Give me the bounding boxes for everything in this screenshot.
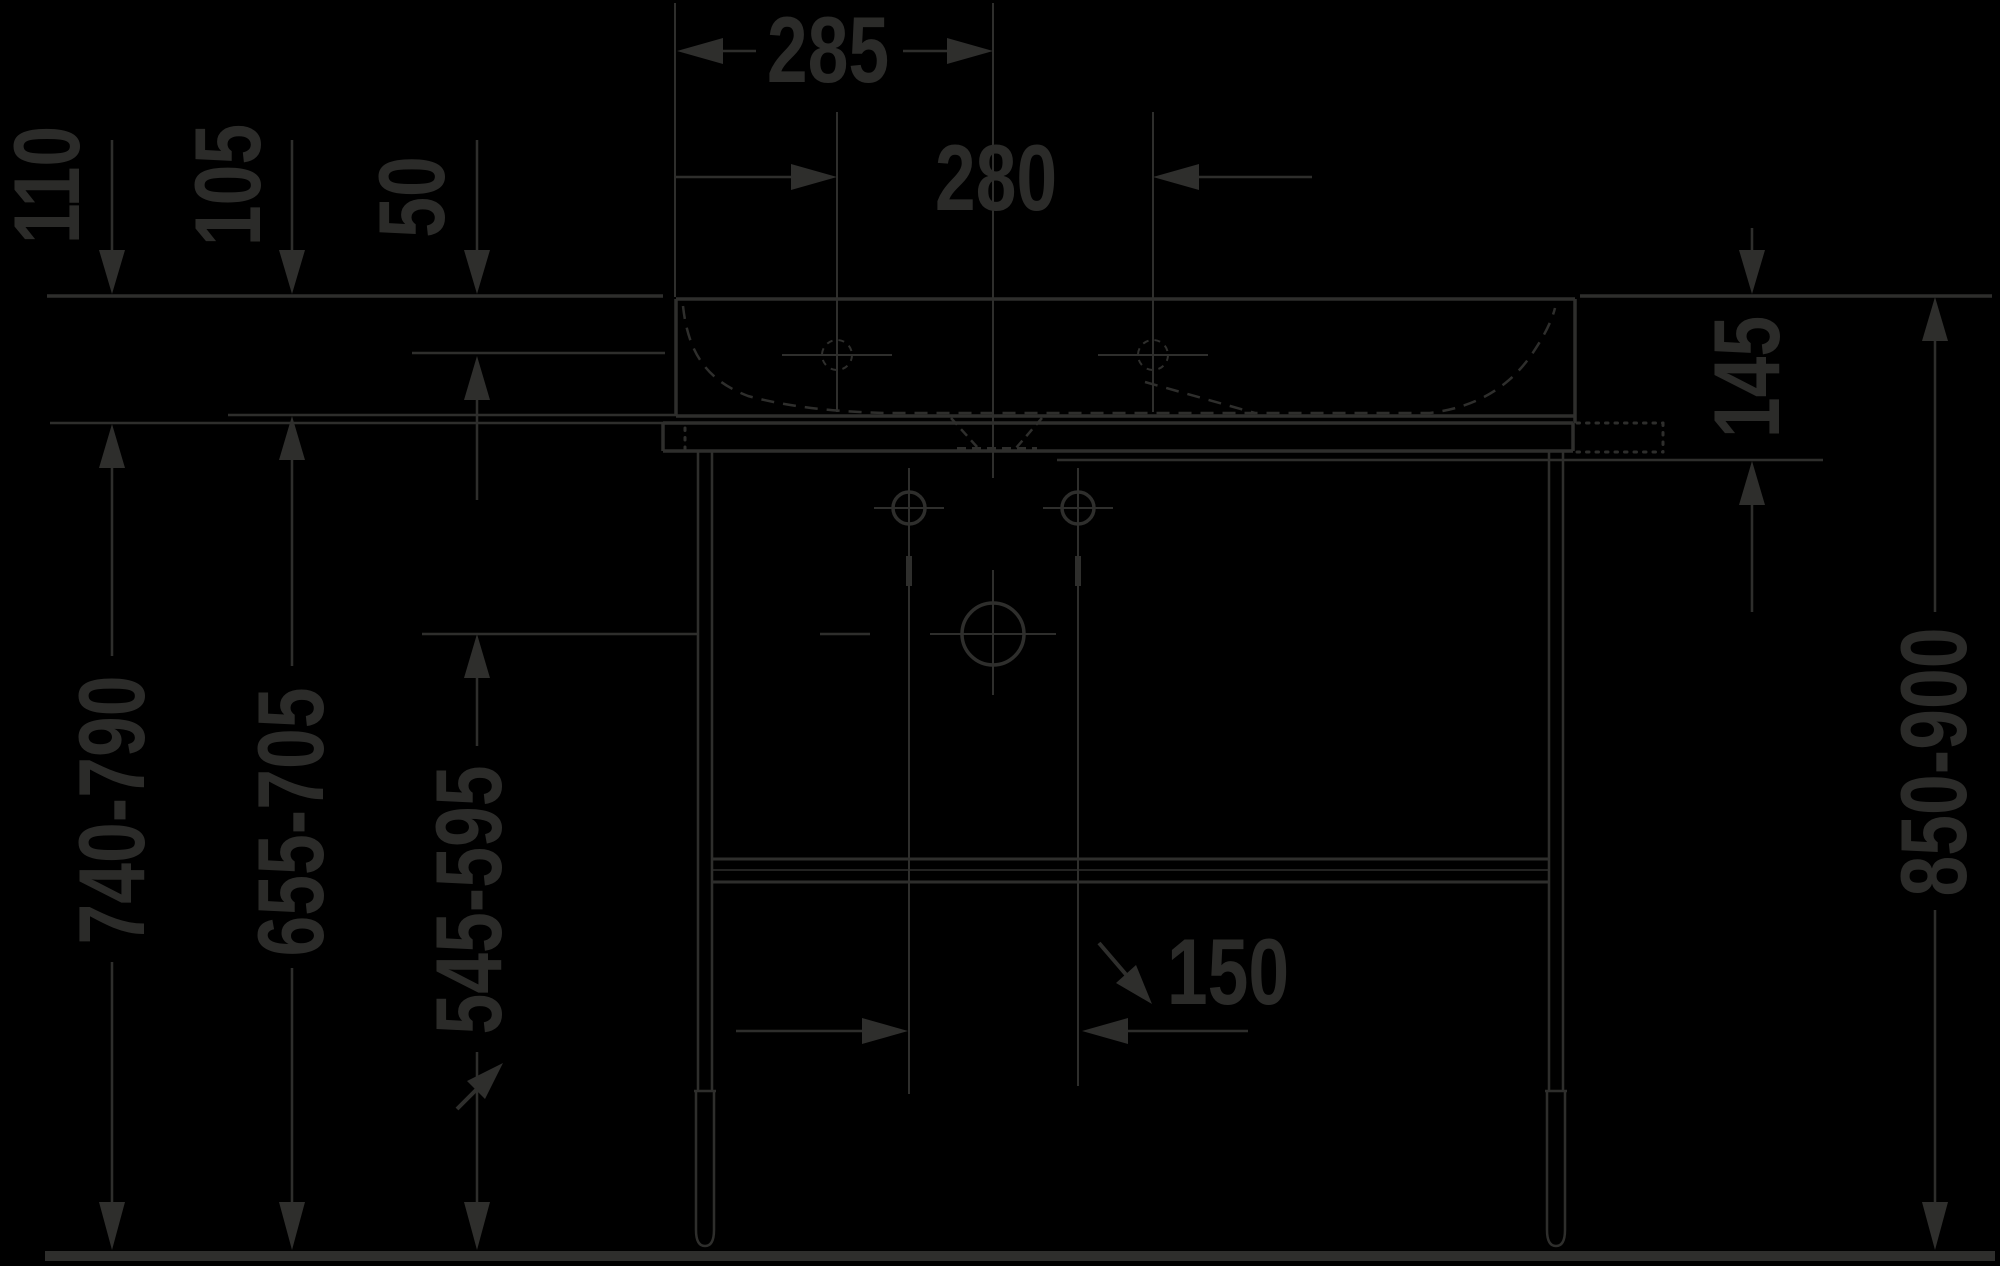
adjust-arrow-545 — [457, 1063, 503, 1109]
basin-outline — [676, 299, 1575, 423]
dim-label-150: 150 — [1167, 925, 1289, 1019]
dim-label-545-595: 545-595 — [422, 765, 516, 1034]
mounting-hole-left — [874, 468, 944, 1094]
dim-label-145: 145 — [1700, 316, 1794, 438]
dim-label-105: 105 — [181, 124, 275, 246]
console-plate — [663, 423, 1573, 451]
mounting-hole-right — [1043, 468, 1113, 1086]
drain-outlet-mark — [930, 3, 1056, 695]
crossbar — [712, 859, 1549, 882]
dim-label-850-900: 850-900 — [1887, 627, 1981, 896]
left-leg — [694, 452, 716, 1246]
basin-bowl-hidden-line — [683, 306, 1555, 413]
faucet-hole-left-mark — [782, 112, 892, 412]
dim-label-655-705: 655-705 — [244, 687, 338, 956]
adjust-arrow-150 — [1099, 943, 1152, 1004]
dim-label-110: 110 — [0, 126, 94, 244]
dim-label-285: 285 — [767, 3, 889, 97]
dim-label-280: 280 — [935, 131, 1057, 225]
console-plate-dotted-extension — [685, 423, 1663, 452]
dim-label-740-790: 740-790 — [65, 675, 159, 944]
faucet-hole-right-mark — [1098, 112, 1208, 412]
right-leg — [1545, 452, 1567, 1246]
dim-label-50: 50 — [365, 156, 459, 238]
technical-drawing-canvas: 285 280 110 105 50 145 740-790 655-705 5… — [0, 0, 2000, 1266]
